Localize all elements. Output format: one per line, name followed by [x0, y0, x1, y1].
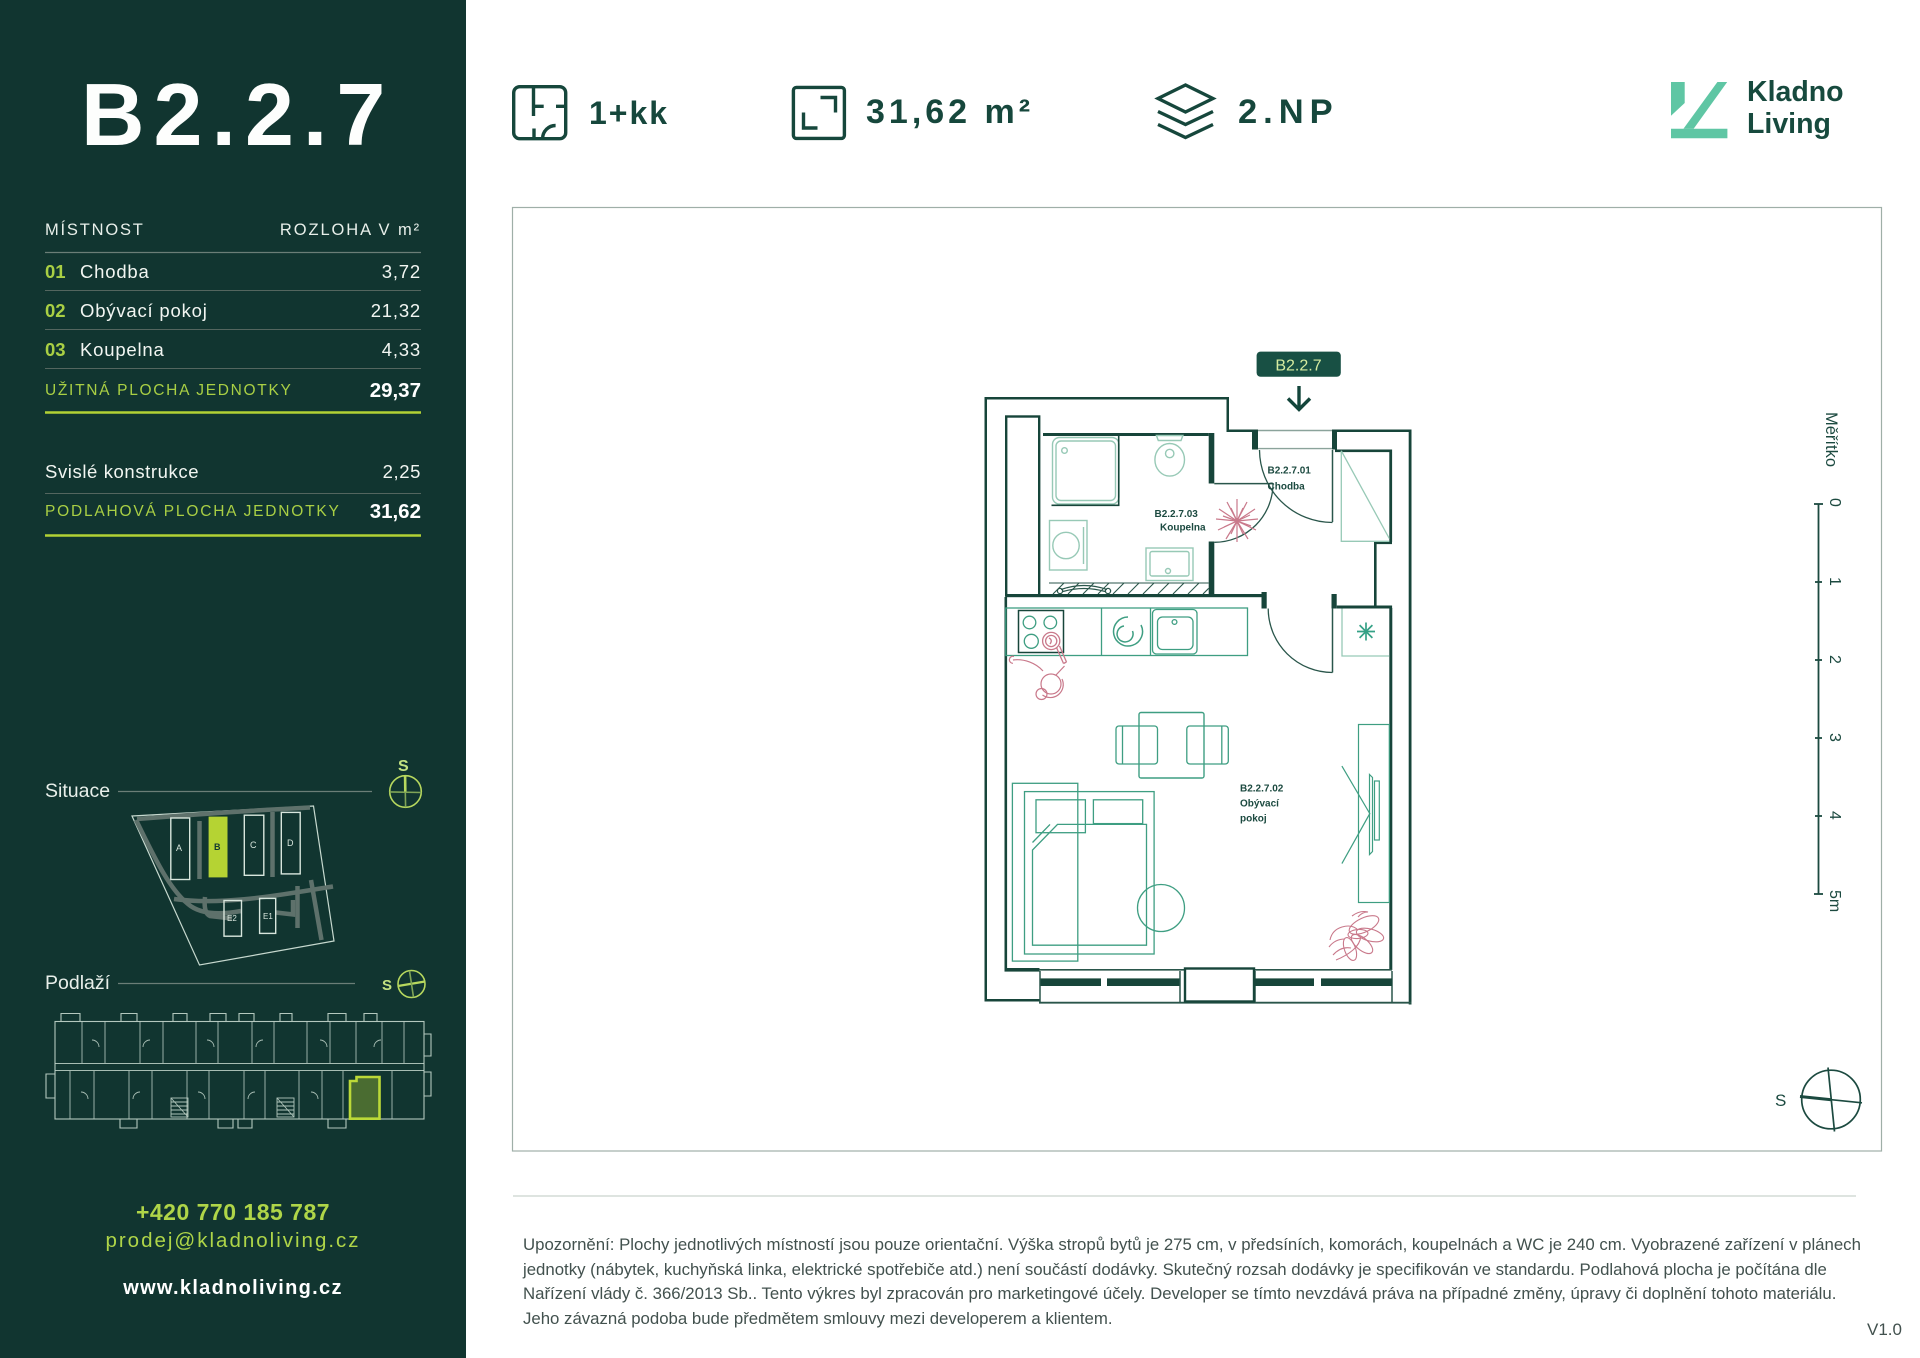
- svg-text:B2.2.7.02: B2.2.7.02: [1240, 784, 1284, 795]
- svg-text:Měřítko: Měřítko: [1822, 412, 1840, 467]
- svg-text:S: S: [398, 758, 409, 775]
- svg-text:B2.2.7: B2.2.7: [1275, 358, 1321, 375]
- svg-text:Obývací: Obývací: [1240, 799, 1280, 810]
- svg-text:B2.2.7.01: B2.2.7.01: [1268, 466, 1312, 477]
- svg-text:1: 1: [1826, 577, 1843, 586]
- svg-text:3: 3: [1826, 733, 1843, 742]
- svg-text:0: 0: [1826, 498, 1843, 507]
- svg-text:E2: E2: [227, 914, 237, 923]
- svg-text:Chodba: Chodba: [1268, 482, 1306, 493]
- svg-text:pokoj: pokoj: [1240, 814, 1267, 825]
- svg-text:S: S: [1775, 1091, 1786, 1110]
- svg-text:E1: E1: [263, 912, 273, 921]
- svg-text:4: 4: [1826, 811, 1843, 820]
- svg-text:C: C: [250, 840, 257, 850]
- svg-text:Koupelna: Koupelna: [1160, 523, 1206, 534]
- svg-text:S: S: [382, 977, 392, 994]
- svg-text:D: D: [287, 838, 294, 848]
- svg-text:2: 2: [1826, 655, 1843, 664]
- svg-text:A: A: [176, 843, 182, 853]
- svg-text:5m: 5m: [1826, 890, 1843, 912]
- svg-text:B: B: [214, 842, 221, 852]
- svg-text:B2.2.7.03: B2.2.7.03: [1155, 509, 1199, 520]
